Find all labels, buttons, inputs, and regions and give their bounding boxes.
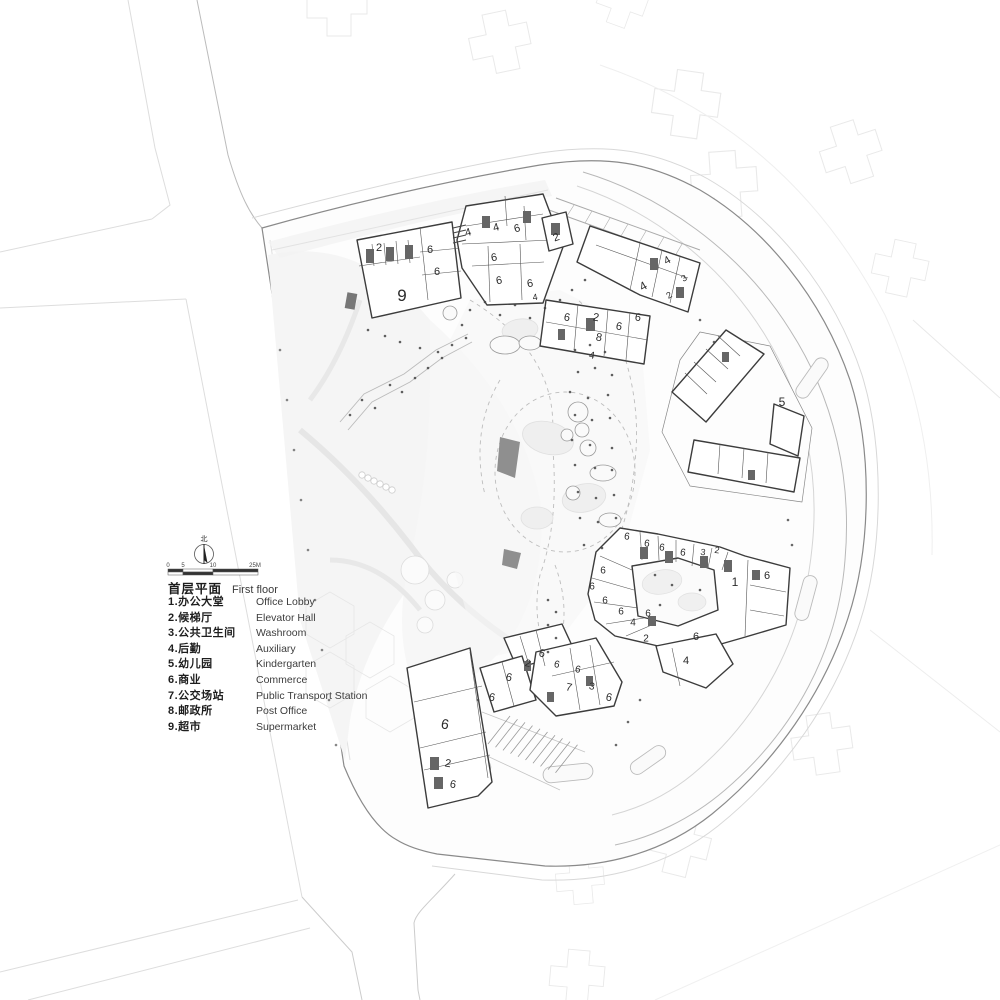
tree-dot: [544, 307, 547, 310]
tree-dot: [611, 469, 614, 472]
room-number-label: 6: [693, 631, 699, 643]
tree-dot: [469, 309, 472, 312]
tree-dot: [419, 347, 422, 350]
legend-item-zh: 6.商业: [168, 673, 256, 689]
tree-dot: [589, 444, 592, 447]
legend-item-en: Supermarket: [256, 721, 316, 733]
legend-title: 首层平面First floor: [168, 578, 398, 595]
room-number-label: 6: [645, 609, 651, 620]
legend-item: 9.超市Supermarket: [168, 720, 398, 736]
legend: 首层平面First floor 1.办公大堂Office Lobby2.候梯厅E…: [168, 578, 398, 735]
legend-item: 6.商业Commerce: [168, 673, 398, 689]
legend-item-zh: 3.公共卫生间: [168, 626, 256, 642]
tree-dot: [555, 637, 558, 640]
tree-dot: [286, 399, 289, 402]
tree-dot: [574, 414, 577, 417]
tree-dot: [465, 337, 468, 340]
legend-item: 2.候梯厅Elevator Hall: [168, 611, 398, 627]
tree-dot: [787, 519, 790, 522]
legend-item-en: Auxiliary: [256, 643, 296, 655]
room-number-label: 6: [600, 566, 606, 577]
room-number-label: 6: [764, 570, 770, 582]
tree-dot: [609, 417, 612, 420]
tree-dot: [571, 289, 574, 292]
legend-item-zh: 8.邮政所: [168, 704, 256, 720]
legend-item: 7.公交场站Public Transport Station: [168, 689, 398, 705]
tree-dot: [437, 351, 440, 354]
legend-title-zh: 首层平面: [168, 582, 222, 596]
tree-dot: [547, 624, 550, 627]
legend-items: 1.办公大堂Office Lobby2.候梯厅Elevator Hall3.公共…: [168, 595, 398, 735]
tree-dot: [307, 549, 310, 552]
tree-dot: [594, 467, 597, 470]
room-number-label: 2: [643, 634, 649, 645]
tree-dot: [601, 547, 604, 550]
tree-dot: [611, 447, 614, 450]
tree-dot: [583, 544, 586, 547]
tree-dot: [441, 357, 444, 360]
tree-dot: [613, 494, 616, 497]
tree-dot: [559, 299, 562, 302]
tree-dot: [699, 589, 702, 592]
tree-dot: [574, 349, 577, 352]
tree-dot: [484, 301, 487, 304]
room-number-label: 1: [732, 575, 739, 589]
tree-dot: [604, 351, 607, 354]
tree-dot: [594, 367, 597, 370]
room-number-label: 6: [427, 244, 433, 256]
room-number-label: 6: [434, 266, 440, 278]
site-plan-canvas: 2669446666424432626684566663216666664264…: [0, 0, 1000, 1000]
room-number-label: 6: [618, 607, 624, 618]
legend-item-en: Public Transport Station: [256, 690, 367, 702]
tree-dot: [584, 279, 587, 282]
tree-dot: [300, 499, 303, 502]
tree-dot: [477, 699, 480, 702]
room-number-label: 5: [779, 395, 786, 409]
site-plan-drawing: 2669446666424432626684566663216666664264…: [0, 0, 1000, 1000]
legend-item: 8.邮政所Post Office: [168, 704, 398, 720]
legend-item-en: Washroom: [256, 627, 306, 639]
tree-dot: [579, 517, 582, 520]
room-number-label: 4: [683, 655, 689, 667]
legend-item-en: Kindergarten: [256, 658, 316, 670]
tree-dot: [547, 599, 550, 602]
tree-dot: [569, 391, 572, 394]
tree-dot: [607, 394, 610, 397]
tree-dot: [401, 391, 404, 394]
room-number-label: 4: [630, 618, 636, 629]
legend-item: 1.办公大堂Office Lobby: [168, 595, 398, 611]
room-number-label: 9: [397, 286, 406, 305]
tree-dot: [654, 574, 657, 577]
legend-item-zh: 9.超市: [168, 720, 256, 736]
legend-item-zh: 1.办公大堂: [168, 595, 256, 611]
north-arrow-icon: 北: [195, 535, 214, 564]
tree-dot: [627, 721, 630, 724]
legend-item: 4.后勤Auxiliary: [168, 642, 398, 658]
tree-dot: [611, 374, 614, 377]
svg-text:25M: 25M: [249, 563, 261, 569]
room-number-label: 6: [589, 582, 595, 593]
tree-dot: [713, 341, 716, 344]
tree-dot: [595, 497, 598, 500]
tree-dot: [671, 584, 674, 587]
scale-bar: 0 5 10 25M: [166, 563, 261, 575]
svg-text:北: 北: [201, 535, 208, 543]
tree-dot: [591, 419, 594, 422]
tree-dot: [399, 341, 402, 344]
room-number-label: 6: [602, 596, 608, 607]
tree-dot: [529, 317, 532, 320]
tree-dot: [639, 699, 642, 702]
tree-dot: [389, 384, 392, 387]
tree-dot: [659, 604, 662, 607]
tree-dot: [597, 521, 600, 524]
legend-item-en: Commerce: [256, 674, 307, 686]
tree-dot: [589, 344, 592, 347]
tree-dot: [361, 399, 364, 402]
tree-dot: [367, 329, 370, 332]
legend-item: 5.幼儿园Kindergarten: [168, 657, 398, 673]
tree-dot: [335, 744, 338, 747]
svg-text:10: 10: [210, 563, 217, 569]
legend-item: 3.公共卫生间Washroom: [168, 626, 398, 642]
tree-dot: [451, 344, 454, 347]
svg-text:0: 0: [166, 563, 170, 569]
tree-dot: [547, 651, 550, 654]
tree-dot: [577, 491, 580, 494]
tree-dot: [414, 377, 417, 380]
tree-dot: [499, 314, 502, 317]
legend-item-en: Office Lobby: [256, 596, 315, 608]
tree-dot: [293, 449, 296, 452]
legend-item-zh: 2.候梯厅: [168, 611, 256, 627]
tree-dot: [699, 319, 702, 322]
tree-dot: [461, 324, 464, 327]
tree-dot: [427, 367, 430, 370]
tree-dot: [615, 744, 618, 747]
legend-item-en: Post Office: [256, 705, 307, 717]
tree-dot: [514, 304, 517, 307]
tree-dot: [571, 439, 574, 442]
tree-dot: [615, 517, 618, 520]
tree-dot: [587, 397, 590, 400]
legend-item-zh: 5.幼儿园: [168, 657, 256, 673]
tree-dot: [349, 414, 352, 417]
tree-dot: [384, 335, 387, 338]
tree-dot: [574, 464, 577, 467]
tree-dot: [374, 407, 377, 410]
legend-item-zh: 7.公交场站: [168, 689, 256, 705]
tree-dot: [555, 611, 558, 614]
tree-dot: [791, 544, 794, 547]
svg-text:5: 5: [181, 563, 185, 569]
legend-item-en: Elevator Hall: [256, 612, 316, 624]
tree-dot: [279, 349, 282, 352]
room-number-label: 2: [376, 242, 382, 254]
legend-item-zh: 4.后勤: [168, 642, 256, 658]
tree-dot: [577, 371, 580, 374]
